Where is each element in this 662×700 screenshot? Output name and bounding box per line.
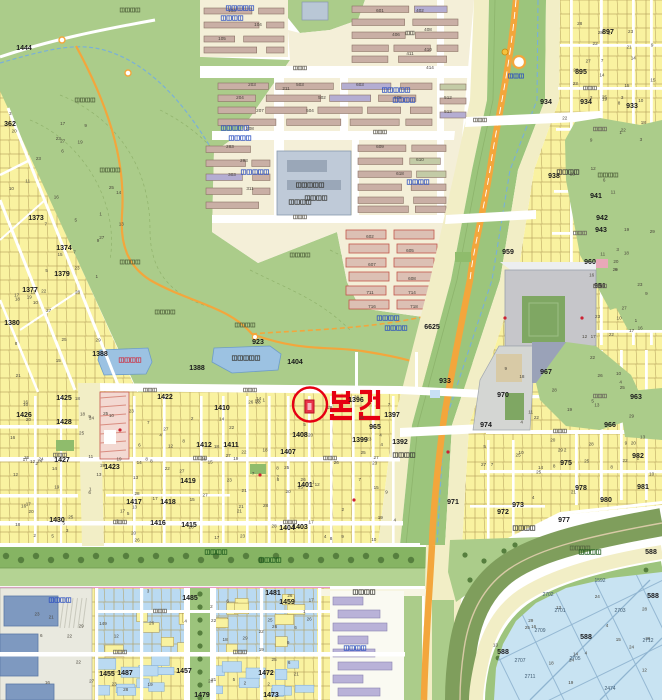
svg-text:22: 22 [590,355,596,360]
svg-text:29: 29 [243,636,249,641]
svg-text:4: 4 [379,433,382,438]
svg-text:1425: 1425 [56,395,72,402]
svg-text:17: 17 [26,502,32,507]
svg-text:942: 942 [596,215,608,222]
svg-text:23: 23 [34,612,40,617]
svg-text:6: 6 [61,149,64,154]
svg-text:512: 512 [444,95,452,100]
svg-text:24: 24 [89,416,95,421]
svg-text:15: 15 [374,485,380,490]
svg-text:22: 22 [165,466,171,471]
svg-text:303: 303 [228,172,236,177]
svg-text:16: 16 [23,399,29,404]
svg-text:8: 8 [150,458,153,463]
svg-text:959: 959 [502,249,514,256]
svg-text:16: 16 [10,435,16,440]
svg-text:8: 8 [277,477,280,482]
svg-text:7: 7 [252,471,255,476]
svg-text:5: 5 [63,520,66,525]
svg-text:1592: 1592 [594,578,605,584]
svg-text:293: 293 [240,158,248,163]
svg-text:22: 22 [562,116,568,121]
svg-text:28: 28 [354,394,360,399]
svg-text:2703: 2703 [614,608,625,614]
svg-text:7: 7 [359,477,362,482]
svg-text:1407: 1407 [280,449,296,456]
svg-text:18: 18 [80,411,86,416]
svg-text:2712: 2712 [642,638,653,644]
svg-text:13: 13 [132,504,138,509]
svg-text:402: 402 [416,8,424,13]
svg-text:28: 28 [589,442,595,447]
svg-text:8: 8 [145,456,148,461]
svg-text:12: 12 [114,633,120,638]
svg-text:1392: 1392 [392,439,408,446]
svg-text:22: 22 [41,288,47,293]
svg-text:7: 7 [601,58,604,63]
svg-text:10: 10 [617,315,623,320]
svg-text:966: 966 [604,422,616,429]
svg-text:1472: 1472 [258,670,274,677]
svg-text:25: 25 [525,625,531,630]
svg-text:588: 588 [645,549,657,556]
svg-text:25: 25 [68,515,74,520]
svg-text:29: 29 [558,448,564,453]
svg-text:23: 23 [56,136,62,141]
svg-text:25: 25 [361,450,367,455]
svg-text:1416: 1416 [150,520,166,527]
svg-text:27: 27 [46,308,52,313]
svg-text:25: 25 [267,617,273,622]
svg-text:27: 27 [622,306,628,311]
svg-text:13: 13 [640,435,646,440]
svg-text:17: 17 [629,328,635,333]
svg-text:6625: 6625 [424,324,440,331]
svg-text:12: 12 [168,443,174,448]
svg-text:25: 25 [584,458,590,463]
svg-text:22: 22 [593,41,599,46]
svg-text:25: 25 [298,485,304,490]
svg-text:2: 2 [267,682,270,687]
svg-text:6: 6 [288,660,291,665]
svg-text:23: 23 [256,400,262,405]
svg-text:502: 502 [318,95,326,100]
svg-text:10: 10 [9,186,15,191]
svg-text:21: 21 [571,489,577,494]
svg-text:26: 26 [307,617,313,622]
svg-text:15: 15 [616,637,622,642]
svg-text:1374: 1374 [56,245,72,252]
svg-text:17: 17 [14,292,20,297]
svg-text:26: 26 [287,593,293,598]
svg-text:21: 21 [626,44,632,49]
svg-text:1379: 1379 [54,271,70,278]
svg-text:19: 19 [27,295,33,300]
svg-text:23: 23 [112,681,118,686]
svg-text:1459: 1459 [279,599,295,606]
svg-text:943: 943 [595,227,607,234]
svg-text:406: 406 [392,32,400,37]
svg-text:20: 20 [573,67,579,72]
svg-text:602: 602 [366,234,374,239]
svg-text:13: 13 [96,472,102,477]
svg-text:3: 3 [616,247,619,252]
svg-text:1479: 1479 [194,692,210,699]
svg-text:1388: 1388 [189,365,205,372]
svg-text:7: 7 [45,222,48,227]
svg-text:29: 29 [650,229,656,234]
svg-text:20: 20 [613,259,619,264]
svg-text:26: 26 [248,400,254,405]
svg-text:4: 4 [324,534,327,539]
svg-text:3: 3 [621,95,624,100]
svg-text:2: 2 [35,461,38,466]
svg-text:25: 25 [284,465,290,470]
svg-text:2: 2 [564,448,567,453]
svg-text:25: 25 [536,470,542,475]
svg-text:5: 5 [127,511,130,516]
svg-text:6: 6 [294,625,297,630]
svg-text:1473: 1473 [263,692,279,699]
svg-text:9: 9 [287,640,290,645]
svg-text:14: 14 [116,190,122,195]
svg-text:11: 11 [600,252,605,257]
svg-text:2: 2 [637,456,640,461]
svg-text:22: 22 [241,450,247,455]
svg-text:970: 970 [497,392,509,399]
svg-text:28: 28 [123,687,129,692]
svg-text:5: 5 [591,399,594,404]
svg-text:26: 26 [598,373,604,378]
svg-text:22: 22 [259,629,265,634]
svg-text:28: 28 [100,463,106,468]
svg-text:11: 11 [25,178,30,183]
svg-text:28: 28 [642,606,648,611]
svg-text:19: 19 [624,227,630,232]
svg-text:20: 20 [131,531,137,536]
svg-text:27: 27 [99,235,105,240]
svg-text:1427: 1427 [54,457,70,464]
svg-text:610: 610 [416,157,424,162]
svg-text:19: 19 [116,456,122,461]
svg-text:18: 18 [641,120,647,125]
svg-text:28: 28 [598,30,604,35]
svg-text:1: 1 [635,318,638,323]
svg-text:4: 4 [606,623,609,628]
svg-text:24: 24 [595,594,601,599]
svg-text:716: 716 [368,304,376,309]
svg-text:207: 207 [256,108,264,113]
svg-text:9: 9 [385,489,388,494]
svg-text:2705: 2705 [569,656,580,662]
svg-text:503: 503 [296,82,304,87]
svg-text:2711: 2711 [525,674,536,680]
svg-text:10: 10 [519,450,525,455]
svg-text:975: 975 [560,460,572,467]
svg-text:18: 18 [519,374,525,379]
svg-text:7: 7 [491,462,494,467]
svg-text:2701: 2701 [554,608,565,614]
svg-text:618: 618 [396,171,404,176]
svg-text:588: 588 [647,593,659,600]
svg-text:14: 14 [631,55,637,60]
svg-text:3: 3 [116,519,119,524]
svg-text:27: 27 [226,453,232,458]
svg-text:12: 12 [315,482,321,487]
svg-text:22: 22 [76,660,82,665]
svg-text:10: 10 [109,413,115,418]
svg-text:6: 6 [226,599,229,604]
svg-text:414: 414 [426,65,434,70]
svg-text:1422: 1422 [157,394,173,401]
svg-text:21: 21 [242,488,248,493]
svg-text:14: 14 [137,460,143,465]
svg-text:1: 1 [99,212,102,217]
svg-text:18: 18 [262,448,268,453]
svg-text:978: 978 [575,485,587,492]
svg-text:8: 8 [553,464,556,469]
svg-text:934: 934 [540,99,552,106]
svg-text:513: 513 [444,109,452,114]
svg-text:21: 21 [16,373,22,378]
svg-text:13: 13 [119,221,125,226]
svg-text:981: 981 [637,484,649,491]
svg-text:1455: 1455 [99,671,115,678]
svg-text:10: 10 [649,472,655,477]
svg-text:5: 5 [233,677,236,682]
svg-text:17: 17 [309,598,315,603]
svg-text:23: 23 [372,461,378,466]
svg-text:5: 5 [75,217,78,222]
svg-text:504: 504 [306,108,314,113]
svg-text:29: 29 [79,624,85,629]
svg-text:1: 1 [263,398,266,403]
svg-text:27: 27 [481,462,487,467]
svg-text:1: 1 [303,609,306,614]
svg-text:21: 21 [211,677,217,682]
svg-text:960: 960 [584,259,596,266]
svg-text:20: 20 [550,437,556,442]
svg-text:23: 23 [595,314,601,319]
svg-text:2702: 2702 [542,592,553,598]
svg-text:21: 21 [49,615,55,620]
svg-text:4: 4 [585,651,588,656]
svg-text:4: 4 [380,442,383,447]
svg-text:7: 7 [73,250,76,255]
svg-text:1412: 1412 [196,442,212,449]
svg-text:15: 15 [57,252,63,257]
svg-text:27: 27 [89,678,95,683]
svg-text:1397: 1397 [384,412,400,419]
svg-text:15: 15 [208,459,214,464]
svg-text:6: 6 [138,442,141,447]
svg-text:10: 10 [33,300,39,305]
svg-text:588: 588 [497,649,509,656]
svg-text:16: 16 [589,273,595,278]
svg-text:9: 9 [625,440,628,445]
svg-text:2: 2 [342,507,345,512]
svg-text:923: 923 [252,339,264,346]
svg-text:8: 8 [618,101,621,106]
svg-text:601: 601 [376,8,384,13]
svg-text:15: 15 [56,358,62,363]
svg-text:11: 11 [528,410,533,415]
svg-text:20: 20 [308,432,314,437]
svg-text:19: 19 [378,515,384,520]
svg-text:1444: 1444 [16,45,32,52]
svg-text:4: 4 [184,619,187,624]
svg-text:19: 19 [54,485,60,490]
svg-text:27: 27 [60,139,66,144]
svg-text:607: 607 [368,262,376,267]
svg-text:8: 8 [610,465,613,470]
svg-text:1457: 1457 [176,668,192,675]
svg-text:21: 21 [237,508,243,513]
svg-text:29: 29 [528,618,534,623]
svg-text:14: 14 [52,466,58,471]
svg-text:408: 408 [424,27,432,32]
svg-text:28: 28 [75,290,81,295]
svg-text:18: 18 [15,522,21,527]
svg-text:20: 20 [286,489,292,494]
svg-text:12: 12 [582,334,588,339]
svg-text:14: 14 [599,73,605,78]
svg-text:26: 26 [149,620,155,625]
svg-text:4: 4 [532,495,535,500]
svg-text:17: 17 [214,535,220,540]
svg-text:973: 973 [512,502,524,509]
svg-text:1380: 1380 [4,320,20,327]
svg-text:18: 18 [223,637,229,642]
svg-text:1428: 1428 [56,419,72,426]
svg-text:22: 22 [621,127,627,132]
svg-text:28: 28 [577,21,583,26]
svg-text:26: 26 [24,455,30,460]
svg-text:1410: 1410 [214,405,230,412]
svg-text:1388: 1388 [92,351,108,358]
svg-text:20: 20 [631,441,637,446]
svg-text:2474: 2474 [604,686,615,692]
svg-text:18: 18 [75,396,81,401]
svg-text:283: 283 [226,144,234,149]
svg-text:18: 18 [624,251,630,256]
svg-text:1487: 1487 [117,670,133,677]
svg-text:2: 2 [33,533,36,538]
svg-text:13: 13 [493,642,499,647]
svg-text:1408: 1408 [292,432,308,439]
svg-text:10: 10 [638,98,644,103]
svg-text:1411: 1411 [223,442,238,449]
svg-text:28: 28 [272,523,278,528]
svg-text:27: 27 [374,455,380,460]
svg-text:14: 14 [219,417,225,422]
svg-text:980: 980 [600,497,612,504]
svg-text:933: 933 [439,378,451,385]
svg-text:362: 362 [4,121,16,128]
svg-text:15: 15 [359,415,365,420]
svg-text:17: 17 [153,496,159,501]
svg-text:4: 4 [520,420,523,425]
svg-text:27: 27 [163,427,169,432]
svg-text:19: 19 [568,680,574,685]
svg-text:18: 18 [549,661,555,666]
svg-text:104: 104 [254,22,262,27]
svg-text:10: 10 [616,371,622,376]
svg-text:22: 22 [623,458,629,463]
svg-text:17: 17 [591,334,597,339]
svg-text:29: 29 [613,267,619,272]
svg-text:8: 8 [15,341,18,346]
svg-text:26: 26 [189,525,195,530]
svg-text:23: 23 [366,436,372,441]
svg-text:5: 5 [483,444,486,449]
svg-text:15: 15 [624,83,630,88]
svg-text:19: 19 [259,647,265,652]
svg-text:933: 933 [626,103,638,110]
svg-text:13: 13 [594,402,600,407]
svg-text:9: 9 [341,534,344,539]
svg-text:1423: 1423 [104,464,120,471]
svg-text:27: 27 [586,59,592,64]
svg-text:9: 9 [590,138,593,143]
svg-text:24: 24 [629,645,635,650]
svg-text:8: 8 [276,466,279,471]
svg-text:603: 603 [356,82,364,87]
svg-text:20: 20 [12,129,18,134]
svg-text:2707: 2707 [514,658,525,664]
svg-text:23: 23 [129,408,135,413]
svg-text:9: 9 [84,123,87,128]
svg-text:11: 11 [88,454,93,459]
svg-text:609: 609 [376,144,384,149]
svg-text:1485: 1485 [182,595,198,602]
svg-text:1404: 1404 [279,525,295,532]
svg-text:18: 18 [214,444,220,449]
svg-text:22: 22 [211,618,217,623]
svg-text:410: 410 [424,47,432,52]
svg-text:1: 1 [312,479,315,484]
svg-text:26: 26 [135,537,141,542]
svg-text:608: 608 [408,276,416,281]
svg-text:13: 13 [133,475,139,480]
svg-text:29: 29 [629,413,635,418]
svg-text:15: 15 [53,517,59,522]
svg-text:8: 8 [330,536,333,541]
svg-text:204: 204 [236,95,244,100]
svg-text:28: 28 [134,491,140,496]
svg-text:23: 23 [36,156,42,161]
svg-text:22: 22 [229,425,235,430]
svg-text:22: 22 [534,415,540,420]
svg-text:2: 2 [210,604,213,609]
svg-text:5: 5 [51,534,54,539]
svg-text:2709: 2709 [534,628,545,634]
svg-text:26: 26 [301,477,307,482]
svg-text:8: 8 [182,439,185,444]
svg-text:9: 9 [104,621,107,626]
svg-text:1: 1 [89,487,92,492]
svg-text:23: 23 [240,534,246,539]
svg-text:4: 4 [159,432,162,437]
svg-text:2: 2 [590,95,593,100]
svg-text:16: 16 [638,326,644,331]
svg-text:2: 2 [244,681,247,686]
svg-text:26: 26 [272,624,278,629]
svg-text:605: 605 [406,248,414,253]
svg-text:11: 11 [611,190,616,195]
svg-text:9: 9 [645,291,648,296]
svg-text:28: 28 [327,405,333,410]
